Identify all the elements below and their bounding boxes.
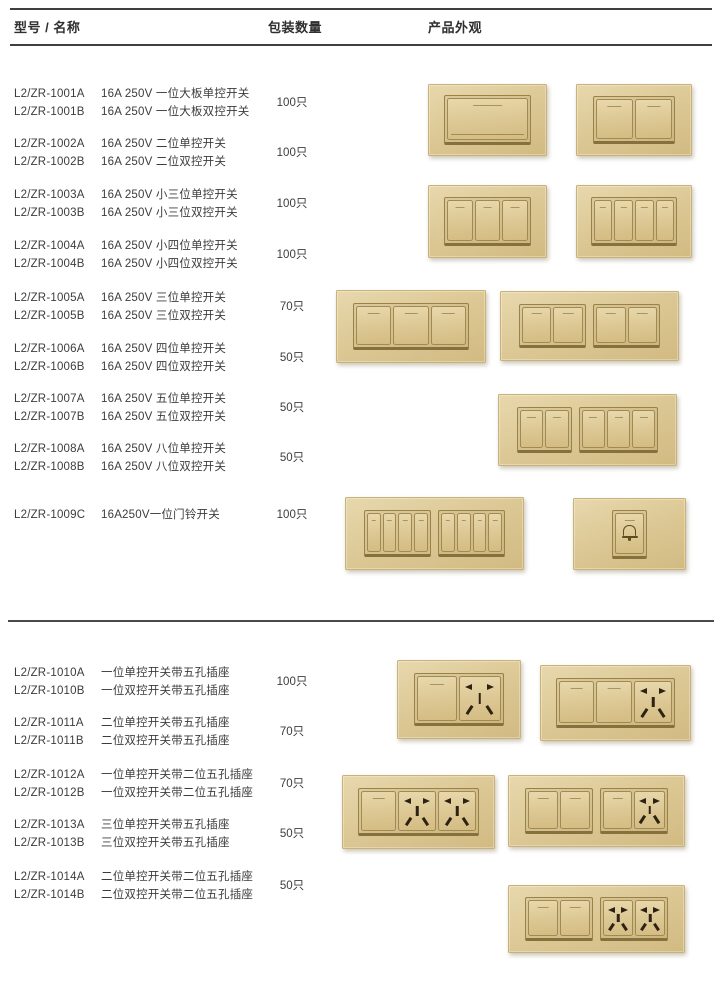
product-description: 16A 250V 四位双控开关 bbox=[101, 358, 226, 376]
socket-slot-2pin-left bbox=[404, 798, 411, 804]
product-image-1012 bbox=[342, 775, 495, 849]
product-description: 16A250V一位门铃开关 bbox=[101, 506, 220, 524]
socket-slot-live bbox=[640, 923, 647, 931]
switch-rocker bbox=[520, 410, 544, 448]
module-group bbox=[364, 510, 431, 557]
model-code-column: L2/ZR-1007AL2/ZR-1007B bbox=[14, 390, 85, 426]
plate-inner-area bbox=[364, 510, 506, 557]
package-quantity: 100只 bbox=[262, 664, 322, 700]
switch-rocker bbox=[545, 410, 569, 448]
model-code-column: L2/ZR-1012AL2/ZR-1012B bbox=[14, 766, 85, 802]
package-quantity: 70只 bbox=[262, 714, 322, 750]
model-code: L2/ZR-1002A bbox=[14, 135, 85, 153]
package-quantity: 50只 bbox=[262, 816, 322, 852]
module-group bbox=[353, 303, 468, 350]
product-description: 16A 250V 一位大板双控开关 bbox=[101, 103, 249, 121]
package-quantity: 50只 bbox=[262, 340, 322, 376]
switch-rocker bbox=[431, 306, 466, 345]
plate-inner-area bbox=[444, 197, 531, 245]
product-description-column: 16A 250V 八位单控开关16A 250V 八位双控开关 bbox=[101, 440, 226, 476]
product-image-1005 bbox=[336, 290, 486, 363]
rocker-seam-line bbox=[451, 134, 523, 135]
model-code-column: L2/ZR-1013AL2/ZR-1013B bbox=[14, 816, 85, 852]
socket-slot-earth bbox=[479, 693, 482, 703]
model-code-column: L2/ZR-1011AL2/ZR-1011B bbox=[14, 714, 84, 750]
plate-inner-area bbox=[358, 788, 479, 837]
product-image-1001 bbox=[428, 84, 547, 156]
socket-slot-live bbox=[640, 708, 648, 718]
bell-dome bbox=[623, 525, 636, 536]
switch-rocker bbox=[473, 513, 487, 552]
package-quantity: 100只 bbox=[262, 85, 322, 121]
switch-rocker bbox=[488, 513, 502, 552]
module-group bbox=[517, 407, 572, 453]
product-image-1008 bbox=[345, 497, 524, 570]
socket-slot-live bbox=[405, 817, 413, 826]
switch-rocker bbox=[367, 513, 381, 552]
rocker-brand-mark bbox=[387, 520, 391, 521]
product-description: 一位双控开关带五孔插座 bbox=[101, 682, 230, 700]
rocker-brand-mark bbox=[570, 907, 581, 908]
module-group bbox=[525, 788, 593, 834]
socket-slot-2pin-left bbox=[639, 798, 646, 804]
product-image-1002 bbox=[576, 84, 692, 156]
rocker-brand-mark bbox=[608, 106, 621, 107]
rocker-brand-mark bbox=[430, 684, 444, 685]
model-code: L2/ZR-1013A bbox=[14, 816, 85, 834]
package-quantity: 100只 bbox=[262, 135, 322, 171]
plate-inner-area bbox=[414, 673, 504, 725]
socket-slot-neutral bbox=[486, 705, 494, 715]
plate-inner-area bbox=[519, 304, 661, 349]
socket-slot-neutral bbox=[653, 815, 660, 824]
model-code: L2/ZR-1012B bbox=[14, 784, 85, 802]
package-quantity: 100只 bbox=[262, 186, 322, 222]
socket-slot-2pin-left bbox=[640, 907, 647, 913]
socket-slot-2pin-left bbox=[465, 684, 472, 690]
rocker-brand-mark bbox=[637, 313, 648, 314]
switch-rocker bbox=[447, 200, 473, 240]
module-group bbox=[579, 407, 659, 453]
product-description-column: 二位单控开关带五孔插座二位双控开关带五孔插座 bbox=[101, 714, 230, 750]
product-description: 16A 250V 二位单控开关 bbox=[101, 135, 226, 153]
module-group bbox=[600, 788, 668, 834]
bell-clapper bbox=[628, 538, 632, 541]
five-hole-socket bbox=[634, 791, 665, 829]
product-description: 二位双控开关带二位五孔插座 bbox=[101, 886, 253, 904]
rocker-brand-mark bbox=[614, 417, 622, 418]
product-image-1010 bbox=[397, 660, 521, 739]
socket-slot-2pin-right bbox=[487, 684, 494, 690]
model-code: L2/ZR-1010B bbox=[14, 682, 85, 700]
product-description: 三位双控开关带五孔插座 bbox=[101, 834, 230, 852]
product-description: 16A 250V 小三位双控开关 bbox=[101, 204, 238, 222]
plate-inner-area bbox=[353, 303, 468, 350]
model-code: L2/ZR-1008B bbox=[14, 458, 85, 476]
module-group bbox=[444, 95, 531, 145]
rocker-brand-mark bbox=[600, 207, 606, 208]
module-group bbox=[519, 304, 586, 349]
top-rule bbox=[10, 8, 712, 10]
product-description: 二位单控开关带二位五孔插座 bbox=[101, 868, 253, 886]
package-quantity: 50只 bbox=[262, 440, 322, 476]
product-description: 二位双控开关带五孔插座 bbox=[101, 732, 230, 750]
model-code-column: L2/ZR-1006AL2/ZR-1006B bbox=[14, 340, 85, 376]
model-code-column: L2/ZR-1008AL2/ZR-1008B bbox=[14, 440, 85, 476]
model-code: L2/ZR-1005B bbox=[14, 307, 85, 325]
socket-slot-2pin-left bbox=[608, 907, 615, 913]
module-group bbox=[438, 510, 505, 557]
product-image-1003 bbox=[428, 185, 547, 258]
model-code: L2/ZR-1001A bbox=[14, 85, 85, 103]
socket-slot-2pin-right bbox=[653, 907, 660, 913]
product-image-1014 bbox=[508, 885, 685, 953]
five-hole-socket bbox=[634, 681, 672, 723]
switch-rocker bbox=[559, 681, 595, 723]
product-description: 16A 250V 四位单控开关 bbox=[101, 340, 226, 358]
model-code: L2/ZR-1008A bbox=[14, 440, 85, 458]
socket-slot-earth bbox=[617, 914, 620, 922]
package-quantity: 50只 bbox=[262, 868, 322, 904]
product-description-column: 16A 250V 二位单控开关16A 250V 二位双控开关 bbox=[101, 135, 226, 171]
rocker-brand-mark bbox=[612, 798, 622, 799]
rocker-brand-mark bbox=[493, 520, 497, 521]
rocker-brand-mark bbox=[461, 520, 465, 521]
switch-rocker bbox=[475, 200, 501, 240]
module-group bbox=[593, 304, 660, 349]
model-code-column: L2/ZR-1001AL2/ZR-1001B bbox=[14, 85, 85, 121]
model-code: L2/ZR-1005A bbox=[14, 289, 85, 307]
switch-rocker bbox=[414, 513, 428, 552]
switch-rocker bbox=[553, 307, 583, 344]
model-code: L2/ZR-1012A bbox=[14, 766, 85, 784]
rocker-brand-mark bbox=[473, 105, 503, 106]
rocker-brand-mark bbox=[553, 417, 561, 418]
switch-rocker bbox=[632, 410, 655, 448]
product-description: 16A 250V 八位双控开关 bbox=[101, 458, 226, 476]
model-code-column: L2/ZR-1003AL2/ZR-1003B bbox=[14, 186, 85, 222]
product-description: 一位单控开关带二位五孔插座 bbox=[101, 766, 253, 784]
switch-rocker bbox=[582, 410, 605, 448]
doorbell-button bbox=[615, 513, 645, 554]
rocker-brand-mark bbox=[621, 207, 627, 208]
rocker-brand-mark bbox=[371, 520, 375, 521]
rocker-brand-mark bbox=[372, 798, 385, 799]
module-group bbox=[358, 788, 479, 837]
five-hole-socket bbox=[438, 791, 476, 832]
product-description-column: 16A250V一位门铃开关 bbox=[101, 506, 220, 524]
rocker-brand-mark bbox=[589, 417, 597, 418]
product-description-column: 一位单控开关带二位五孔插座一位双控开关带二位五孔插座 bbox=[101, 766, 253, 802]
rocker-brand-mark bbox=[606, 313, 617, 314]
rocker-brand-mark bbox=[641, 207, 647, 208]
switch-rocker bbox=[635, 99, 672, 139]
model-code-column: L2/ZR-1009C bbox=[14, 506, 85, 524]
switch-rocker bbox=[393, 306, 428, 345]
rocker-brand-mark bbox=[456, 207, 465, 208]
socket-slot-neutral bbox=[462, 817, 470, 826]
product-description-column: 16A 250V 五位单控开关16A 250V 五位双控开关 bbox=[101, 390, 226, 426]
module-group bbox=[414, 673, 504, 725]
column-header-appearance: 产品外观 bbox=[428, 17, 482, 36]
socket-slot-2pin-right bbox=[423, 798, 430, 804]
rocker-brand-mark bbox=[483, 207, 492, 208]
socket-slot-earth bbox=[648, 806, 651, 815]
product-image-1007 bbox=[498, 394, 677, 466]
switch-rocker bbox=[417, 676, 457, 720]
module-group bbox=[612, 510, 648, 559]
product-description: 16A 250V 八位单控开关 bbox=[101, 440, 226, 458]
module-group bbox=[600, 897, 668, 941]
socket-slot-2pin-right bbox=[659, 688, 666, 694]
plate-inner-area bbox=[517, 407, 659, 453]
package-quantity: 50只 bbox=[262, 390, 322, 426]
rocker-brand-mark bbox=[368, 313, 381, 314]
plate-inner-area bbox=[444, 95, 531, 145]
product-image-1004 bbox=[576, 185, 692, 258]
package-quantity: 100只 bbox=[262, 237, 322, 273]
module-group bbox=[444, 197, 531, 245]
product-description: 一位双控开关带二位五孔插座 bbox=[101, 784, 253, 802]
product-description-column: 二位单控开关带二位五孔插座二位双控开关带二位五孔插座 bbox=[101, 868, 253, 904]
package-quantity: 70只 bbox=[262, 289, 322, 325]
socket-slot-neutral bbox=[621, 923, 628, 931]
socket-slot-2pin-right bbox=[653, 798, 660, 804]
switch-rocker bbox=[528, 900, 558, 936]
section-divider-rule bbox=[8, 620, 714, 622]
plate-inner-area bbox=[556, 678, 675, 728]
product-description-column: 一位单控开关带五孔插座一位双控开关带五孔插座 bbox=[101, 664, 230, 700]
switch-rocker bbox=[635, 200, 654, 240]
product-description: 16A 250V 小三位单控开关 bbox=[101, 186, 238, 204]
socket-slot-neutral bbox=[653, 923, 660, 931]
socket-slot-2pin-left bbox=[640, 688, 647, 694]
product-description: 16A 250V 五位单控开关 bbox=[101, 390, 226, 408]
product-image-1013 bbox=[508, 775, 685, 847]
product-description-column: 16A 250V 一位大板单控开关16A 250V 一位大板双控开关 bbox=[101, 85, 249, 121]
product-description: 16A 250V 小四位单控开关 bbox=[101, 237, 238, 255]
header-rule bbox=[10, 44, 712, 46]
model-code: L2/ZR-1003A bbox=[14, 186, 85, 204]
five-hole-socket bbox=[635, 900, 665, 936]
model-code: L2/ZR-1014B bbox=[14, 886, 85, 904]
module-group bbox=[593, 96, 675, 144]
rocker-brand-mark bbox=[477, 520, 481, 521]
model-code: L2/ZR-1010A bbox=[14, 664, 85, 682]
model-code: L2/ZR-1001B bbox=[14, 103, 85, 121]
plate-inner-area bbox=[591, 197, 678, 245]
socket-slot-2pin-right bbox=[463, 798, 470, 804]
model-code: L2/ZR-1004B bbox=[14, 255, 85, 273]
five-hole-socket bbox=[459, 676, 502, 720]
switch-rocker bbox=[596, 99, 633, 139]
model-code-column: L2/ZR-1005AL2/ZR-1005B bbox=[14, 289, 85, 325]
module-group bbox=[556, 678, 675, 728]
rocker-brand-mark bbox=[640, 417, 648, 418]
switch-rocker bbox=[603, 791, 632, 829]
product-image-1011 bbox=[540, 665, 691, 741]
product-description: 16A 250V 二位双控开关 bbox=[101, 153, 226, 171]
rocker-brand-mark bbox=[608, 688, 621, 689]
rocker-brand-mark bbox=[537, 798, 548, 799]
switch-rocker bbox=[596, 681, 632, 723]
socket-slot-2pin-left bbox=[444, 798, 451, 804]
five-hole-socket bbox=[603, 900, 633, 936]
socket-slot-live bbox=[466, 705, 474, 715]
module-group bbox=[591, 197, 678, 245]
model-code-column: L2/ZR-1010AL2/ZR-1010B bbox=[14, 664, 85, 700]
socket-slot-earth bbox=[649, 914, 652, 922]
product-description-column: 16A 250V 三位单控开关16A 250V 三位双控开关 bbox=[101, 289, 226, 325]
rocker-brand-mark bbox=[405, 313, 418, 314]
five-hole-socket bbox=[398, 791, 436, 832]
rocker-brand-mark bbox=[511, 207, 520, 208]
socket-slot-live bbox=[445, 817, 453, 826]
model-code: L2/ZR-1011B bbox=[14, 732, 84, 750]
model-code: L2/ZR-1002B bbox=[14, 153, 85, 171]
product-description: 16A 250V 一位大板单控开关 bbox=[101, 85, 249, 103]
socket-slot-2pin-right bbox=[621, 907, 628, 913]
socket-slot-earth bbox=[416, 806, 419, 815]
model-code-column: L2/ZR-1004AL2/ZR-1004B bbox=[14, 237, 85, 273]
switch-rocker bbox=[560, 900, 590, 936]
rocker-brand-mark bbox=[403, 520, 407, 521]
product-description-column: 16A 250V 小三位单控开关16A 250V 小三位双控开关 bbox=[101, 186, 238, 222]
socket-slot-live bbox=[608, 923, 615, 931]
rocker-brand-mark bbox=[570, 688, 583, 689]
catalog-page: 型号 / 名称 包装数量 产品外观 L2/ZR-1001AL2/ZR-1001B… bbox=[0, 0, 722, 986]
product-description-column: 三位单控开关带五孔插座三位双控开关带五孔插座 bbox=[101, 816, 230, 852]
switch-rocker bbox=[441, 513, 455, 552]
switch-rocker bbox=[522, 307, 552, 344]
product-description-column: 16A 250V 四位单控开关16A 250V 四位双控开关 bbox=[101, 340, 226, 376]
rocker-brand-mark bbox=[446, 520, 450, 521]
switch-rocker bbox=[398, 513, 412, 552]
model-code: L2/ZR-1006B bbox=[14, 358, 85, 376]
product-description: 二位单控开关带五孔插座 bbox=[101, 714, 230, 732]
module-group bbox=[525, 897, 593, 941]
rocker-brand-mark bbox=[442, 313, 455, 314]
product-description: 16A 250V 三位双控开关 bbox=[101, 307, 226, 325]
bell-icon bbox=[616, 514, 644, 553]
switch-rocker bbox=[628, 307, 658, 344]
product-description: 16A 250V 三位单控开关 bbox=[101, 289, 226, 307]
product-description: 16A 250V 小四位双控开关 bbox=[101, 255, 238, 273]
rocker-brand-mark bbox=[647, 106, 660, 107]
switch-rocker bbox=[560, 791, 590, 829]
package-quantity: 70只 bbox=[262, 766, 322, 802]
switch-rocker bbox=[596, 307, 626, 344]
switch-rocker bbox=[607, 410, 630, 448]
rocker-brand-mark bbox=[570, 798, 581, 799]
model-code-column: L2/ZR-1014AL2/ZR-1014B bbox=[14, 868, 85, 904]
model-code: L2/ZR-1004A bbox=[14, 237, 85, 255]
product-description: 三位单控开关带五孔插座 bbox=[101, 816, 230, 834]
switch-rocker bbox=[457, 513, 471, 552]
rocker-brand-mark bbox=[527, 417, 535, 418]
column-header-model: 型号 / 名称 bbox=[14, 17, 80, 36]
model-code: L2/ZR-1006A bbox=[14, 340, 85, 358]
plate-inner-area bbox=[525, 788, 669, 834]
rocker-brand-mark bbox=[563, 313, 574, 314]
model-code: L2/ZR-1009C bbox=[14, 506, 85, 524]
socket-slot-neutral bbox=[658, 708, 666, 718]
model-code: L2/ZR-1013B bbox=[14, 834, 85, 852]
model-code: L2/ZR-1007B bbox=[14, 408, 85, 426]
model-code: L2/ZR-1003B bbox=[14, 204, 85, 222]
plate-inner-area bbox=[525, 897, 669, 941]
column-header-quantity: 包装数量 bbox=[268, 17, 322, 36]
rocker-brand-mark bbox=[531, 313, 542, 314]
switch-rocker bbox=[361, 791, 396, 832]
product-image-1009 bbox=[573, 498, 686, 570]
switch-rocker bbox=[383, 513, 397, 552]
product-description: 16A 250V 五位双控开关 bbox=[101, 408, 226, 426]
plate-inner-area bbox=[612, 510, 648, 559]
package-quantity: 100只 bbox=[262, 506, 322, 524]
socket-slot-live bbox=[639, 815, 646, 824]
switch-rocker bbox=[502, 200, 528, 240]
socket-slot-earth bbox=[456, 806, 459, 815]
rocker-brand-mark bbox=[419, 520, 423, 521]
switch-rocker bbox=[656, 200, 675, 240]
model-code: L2/ZR-1011A bbox=[14, 714, 84, 732]
rocker-brand-mark bbox=[662, 207, 668, 208]
switch-rocker bbox=[447, 98, 528, 140]
plate-inner-area bbox=[593, 96, 675, 144]
product-description: 一位单控开关带五孔插座 bbox=[101, 664, 230, 682]
switch-rocker bbox=[614, 200, 633, 240]
model-code: L2/ZR-1007A bbox=[14, 390, 85, 408]
model-code-column: L2/ZR-1002AL2/ZR-1002B bbox=[14, 135, 85, 171]
switch-rocker bbox=[356, 306, 391, 345]
rocker-brand-mark bbox=[537, 907, 548, 908]
product-description-column: 16A 250V 小四位单控开关16A 250V 小四位双控开关 bbox=[101, 237, 238, 273]
product-image-1006 bbox=[500, 291, 679, 361]
socket-slot-neutral bbox=[422, 817, 430, 826]
switch-rocker bbox=[528, 791, 558, 829]
switch-rocker bbox=[594, 200, 613, 240]
model-code: L2/ZR-1014A bbox=[14, 868, 85, 886]
socket-slot-earth bbox=[652, 697, 655, 707]
